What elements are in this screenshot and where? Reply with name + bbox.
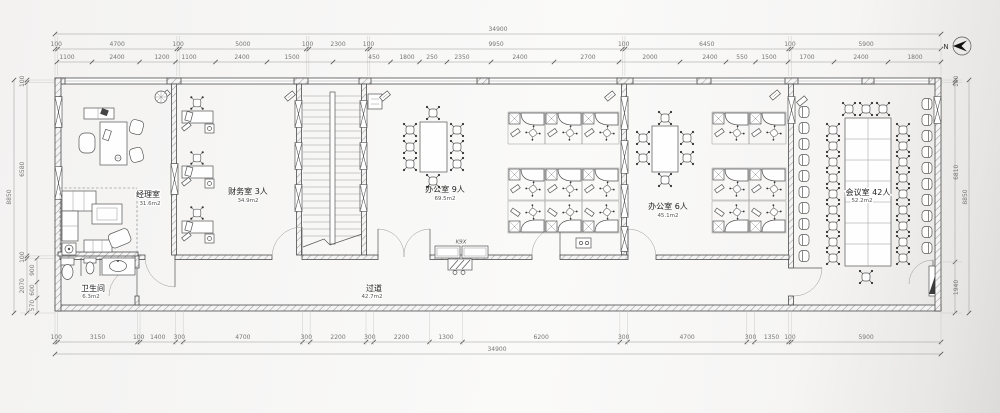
floor-tag: [576, 238, 591, 248]
room-label-office9: 办公室 9人69.5m2: [425, 184, 465, 202]
room-label-bathroom: 卫生间6.3m2: [81, 283, 105, 300]
dim-label: 100: [51, 334, 63, 341]
workstation: [712, 201, 749, 233]
dim-label: 2350: [454, 54, 469, 61]
door-tag: [380, 91, 391, 101]
svg-text:卫生间: 卫生间: [81, 283, 105, 293]
plant: [155, 91, 167, 103]
dim-total-right: 8850: [962, 78, 971, 315]
dim-label: 5900: [858, 41, 873, 48]
column: [934, 97, 941, 124]
door-tag: [770, 90, 781, 100]
copier-annotation: K9X: [456, 240, 467, 246]
executive-desk: [100, 122, 127, 165]
dim-label: 100: [302, 41, 314, 48]
staircase: [303, 92, 382, 247]
dim-label: 100: [172, 41, 184, 48]
dim-label: 2200: [394, 334, 409, 341]
bathroom-fixtures: [61, 258, 135, 280]
dim-label: 300: [174, 334, 186, 341]
column: [55, 167, 62, 200]
dim-label: 9950: [488, 41, 503, 48]
dim-label: 2400: [234, 54, 249, 61]
toilet: [61, 258, 74, 280]
workstation: [582, 112, 619, 144]
column: [360, 185, 367, 212]
north-arrow: N: [943, 37, 971, 55]
north-arrow-icon: [953, 41, 967, 52]
workstation: [582, 201, 619, 233]
floor-plan-page: K9X 经理室31.6m2 财务室 3人34.9m2 办公室 9人69.5m2 …: [0, 0, 1000, 413]
conference-table: [403, 106, 464, 188]
dim-label: 6200: [534, 334, 549, 341]
dim-label: 100: [618, 41, 630, 48]
svg-text:34.9m2: 34.9m2: [237, 198, 258, 204]
column: [621, 185, 628, 218]
dim-label: 100: [784, 334, 796, 341]
dim-label: 1940: [953, 280, 960, 295]
svg-text:8850: 8850: [962, 189, 969, 204]
workstation: [182, 96, 214, 133]
svg-text:69.5m2: 69.5m2: [434, 196, 455, 202]
column: [788, 97, 795, 124]
workstation: [545, 168, 582, 200]
dim-label: 6450: [699, 41, 714, 48]
door-tag: [797, 96, 808, 106]
dim-label: 6580: [19, 161, 26, 176]
dim-label: 1100: [59, 54, 74, 61]
dim-label: 100: [19, 251, 26, 263]
dim-total-bottom: 34900: [53, 346, 943, 356]
dim-label: 4700: [679, 334, 694, 341]
dim-label: 570: [29, 300, 36, 312]
dim-total-top: 34900: [53, 26, 943, 36]
svg-text:8850: 8850: [6, 189, 13, 204]
sink: [102, 258, 135, 275]
column: [360, 143, 367, 170]
dim-label: 300: [364, 334, 376, 341]
workstation: [749, 201, 786, 233]
dim-label: 550: [736, 54, 748, 61]
column: [621, 97, 628, 130]
dim-label: 100: [953, 75, 960, 87]
column: [621, 227, 628, 252]
dim-label: 2070: [19, 278, 26, 293]
room-label-manager: 经理室31.6m2: [136, 189, 161, 207]
dim-label: 1500: [284, 54, 299, 61]
executive-chair: [79, 133, 95, 153]
room-label-office6: 办公室 6人45.1m2: [648, 201, 688, 219]
main-double-door: [378, 229, 430, 257]
room-labels: 经理室31.6m2 财务室 3人34.9m2 办公室 9人69.5m2 办公室 …: [81, 184, 890, 300]
svg-text:办公室 9人: 办公室 9人: [425, 184, 465, 194]
svg-text:34900: 34900: [487, 346, 506, 353]
stair-stringer: [330, 92, 335, 244]
workstation: [508, 201, 545, 233]
doors: [109, 227, 935, 296]
column: [295, 185, 302, 212]
workstation: [508, 168, 545, 200]
manager-office-furniture: [60, 91, 167, 255]
svg-text:31.6m2: 31.6m2: [139, 201, 160, 207]
dim-label: 1350: [764, 334, 779, 341]
svg-text:6.3m2: 6.3m2: [82, 294, 100, 300]
workstation: [749, 168, 786, 200]
south-wall: [55, 305, 941, 311]
svg-text:经理室: 经理室: [136, 189, 160, 199]
dim-label: 900: [29, 264, 36, 276]
dim-label: 100: [784, 41, 796, 48]
workstation: [182, 151, 214, 188]
coffee-table: [92, 204, 122, 224]
dim-label: 2200: [330, 334, 345, 341]
wall-chair-row-west: [799, 107, 809, 262]
dim-label: 1200: [154, 54, 169, 61]
room-label-corridor: 过道42.7m2: [361, 283, 382, 300]
urinal: [84, 258, 96, 274]
manager-door: [145, 257, 175, 287]
workstation: [182, 206, 214, 243]
dim-label: 2400: [109, 54, 124, 61]
dim-label: 300: [618, 334, 630, 341]
dim-label: 300: [301, 334, 313, 341]
dim-label: 1300: [438, 334, 453, 341]
door-tags: [160, 90, 808, 106]
workstation: [749, 112, 786, 144]
floor-plan-canvas: K9X 经理室31.6m2 财务室 3人34.9m2 办公室 9人69.5m2 …: [0, 0, 1000, 413]
east-exit-door: [909, 260, 935, 296]
svg-text:42.7m2: 42.7m2: [361, 294, 382, 300]
svg-text:34900: 34900: [488, 26, 507, 33]
dim-label: 2700: [580, 54, 595, 61]
sofa-set: [60, 188, 137, 255]
cabinet: [84, 108, 114, 119]
dim-label: 1400: [150, 334, 165, 341]
dim-label: 2400: [853, 54, 868, 61]
dim-label: 100: [363, 41, 375, 48]
column: [360, 101, 367, 128]
column: [171, 164, 178, 195]
dim-label: 1800: [399, 54, 414, 61]
svg-text:过道: 过道: [366, 283, 382, 293]
dim-label: 1800: [907, 54, 922, 61]
shaft-box: [368, 94, 382, 109]
workstation: [712, 168, 749, 200]
dim-label: 250: [426, 54, 438, 61]
finance-furniture: [182, 96, 214, 243]
office6-door: [628, 229, 656, 257]
workstation: [712, 112, 749, 144]
room-label-finance: 财务室 3人34.9m2: [228, 186, 268, 204]
workstation: [545, 112, 582, 144]
dim-label: 2400: [702, 54, 717, 61]
dim-label: 1100: [181, 54, 196, 61]
workstation: [582, 168, 619, 200]
dim-label: 5000: [235, 41, 250, 48]
column: [295, 143, 302, 170]
workstation: [508, 112, 545, 144]
door-tag: [605, 91, 616, 101]
dim-label: 2400: [512, 54, 527, 61]
svg-text:会议室 42人: 会议室 42人: [846, 187, 891, 197]
dim-label: 600: [29, 284, 36, 296]
conference-table: [636, 111, 694, 187]
workstation: [545, 201, 582, 233]
svg-text:45.1m2: 45.1m2: [657, 213, 678, 219]
svg-text:办公室 6人: 办公室 6人: [648, 201, 688, 211]
dim-label: 1500: [761, 54, 776, 61]
dim-label: 1700: [799, 54, 814, 61]
column: [295, 101, 302, 128]
office9-furniture: [403, 106, 619, 233]
dim-label: 2300: [330, 41, 345, 48]
dim-label: 3150: [90, 334, 105, 341]
interior-walls: [58, 84, 794, 305]
dim-label: 100: [133, 334, 145, 341]
svg-text:N: N: [943, 43, 948, 51]
svg-text:财务室 3人: 财务室 3人: [228, 186, 268, 196]
dim-label: 100: [51, 41, 63, 48]
meeting-door: [794, 268, 822, 296]
dim-label: 2000: [642, 54, 657, 61]
dim-label: 4700: [235, 334, 250, 341]
svg-text:52.2m2: 52.2m2: [851, 198, 872, 204]
door-tag: [285, 91, 296, 101]
dim-label: 450: [368, 54, 380, 61]
column: [621, 141, 628, 174]
dim-label: 300: [745, 334, 757, 341]
dim-label: 100: [19, 75, 26, 87]
column: [55, 97, 62, 128]
wall-chair-row-east: [922, 99, 932, 254]
dim-label: 6810: [953, 164, 960, 179]
guest-chair: [128, 146, 144, 163]
dim-label: 5900: [858, 334, 873, 341]
guest-chair: [128, 119, 144, 136]
dim-label: 4700: [110, 41, 125, 48]
dim-total-left: 8850: [6, 78, 16, 315]
